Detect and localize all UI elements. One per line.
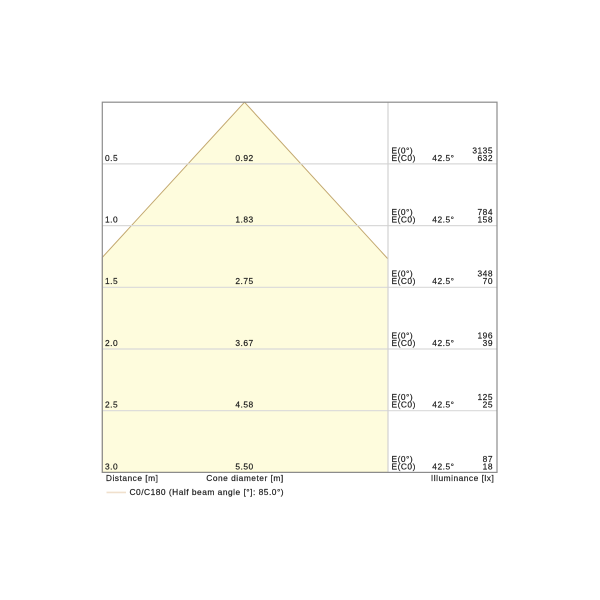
svg-text:42.5°: 42.5° — [432, 276, 454, 286]
svg-text:2.0: 2.0 — [105, 338, 118, 348]
svg-text:3.67: 3.67 — [235, 338, 253, 348]
svg-text:42.5°: 42.5° — [432, 400, 454, 410]
svg-text:Distance [m]: Distance [m] — [106, 473, 159, 483]
svg-text:C0/C180 (Half beam angle [°]:: C0/C180 (Half beam angle [°]: 85.0°) — [130, 487, 285, 497]
svg-text:Cone diameter [m]: Cone diameter [m] — [206, 473, 283, 483]
svg-text:Illuminance [lx]: Illuminance [lx] — [431, 473, 494, 483]
svg-text:2.5: 2.5 — [105, 400, 118, 410]
svg-text:E(C0): E(C0) — [392, 276, 416, 286]
svg-text:25: 25 — [483, 400, 493, 410]
svg-text:42.5°: 42.5° — [432, 461, 454, 471]
svg-text:1.83: 1.83 — [235, 215, 253, 225]
svg-text:2.75: 2.75 — [235, 276, 253, 286]
svg-text:E(C0): E(C0) — [392, 215, 416, 225]
svg-text:4.58: 4.58 — [235, 400, 253, 410]
svg-text:E(C0): E(C0) — [392, 153, 416, 163]
svg-text:42.5°: 42.5° — [432, 153, 454, 163]
svg-text:0.5: 0.5 — [105, 153, 118, 163]
svg-text:39: 39 — [483, 338, 493, 348]
svg-text:42.5°: 42.5° — [432, 338, 454, 348]
svg-text:42.5°: 42.5° — [432, 215, 454, 225]
svg-text:632: 632 — [478, 153, 493, 163]
svg-text:158: 158 — [478, 215, 493, 225]
svg-text:5.50: 5.50 — [235, 461, 253, 471]
svg-text:E(C0): E(C0) — [392, 461, 416, 471]
svg-text:E(C0): E(C0) — [392, 338, 416, 348]
svg-text:18: 18 — [483, 461, 493, 471]
svg-text:3.0: 3.0 — [105, 461, 118, 471]
svg-text:E(C0): E(C0) — [392, 400, 416, 410]
svg-text:1.0: 1.0 — [105, 215, 118, 225]
svg-text:0.92: 0.92 — [235, 153, 253, 163]
svg-text:1.5: 1.5 — [105, 276, 118, 286]
svg-text:70: 70 — [483, 276, 493, 286]
